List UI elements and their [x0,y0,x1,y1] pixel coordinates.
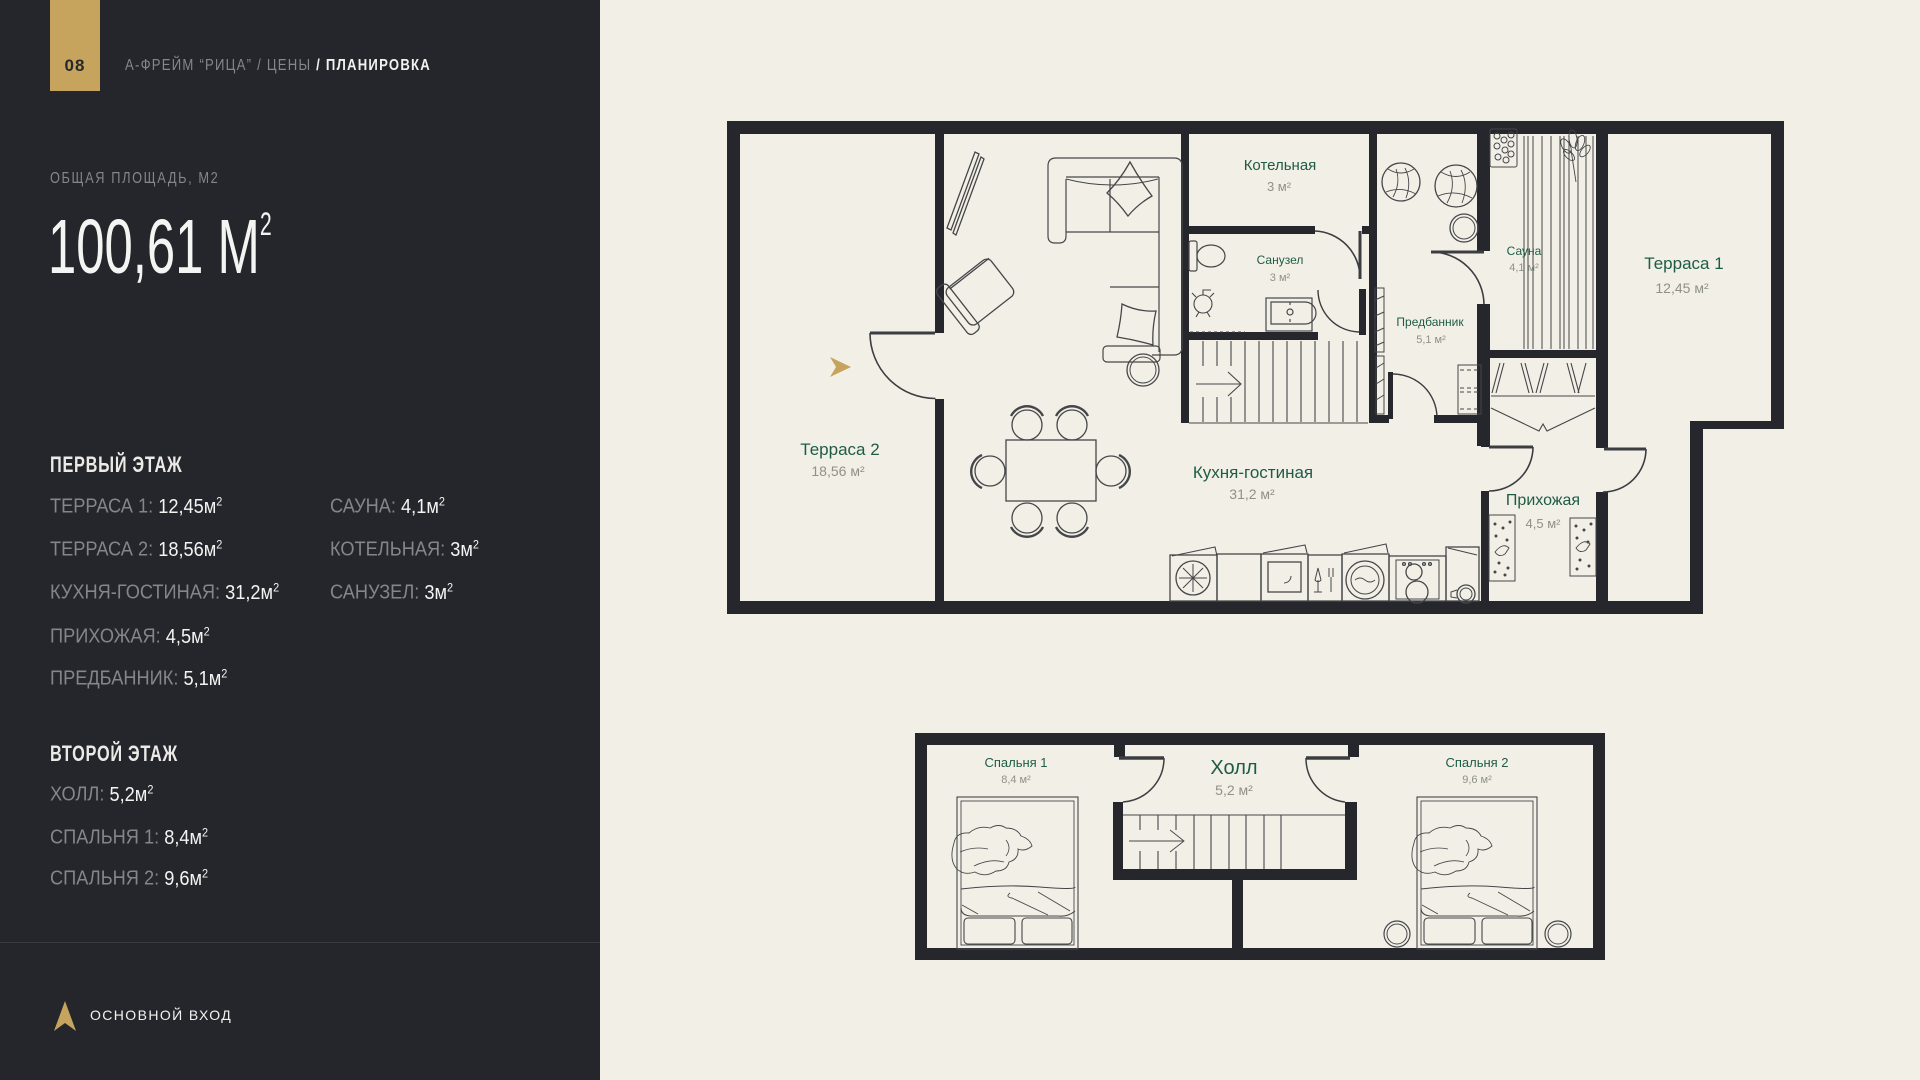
svg-text:4,5 м²: 4,5 м² [1526,516,1562,531]
svg-text:Прихожая: Прихожая [1506,492,1580,509]
svg-text:9,6 м²: 9,6 м² [1462,774,1492,786]
svg-text:Предбанник: Предбанник [1396,315,1464,329]
svg-text:Котельная: Котельная [1244,157,1317,174]
svg-text:12,45 м²: 12,45 м² [1655,280,1709,296]
svg-text:Санузел: Санузел [1257,253,1304,267]
svg-text:Спальня 1: Спальня 1 [984,755,1047,770]
svg-text:18,56 м²: 18,56 м² [811,463,865,479]
svg-text:Сауна: Сауна [1507,244,1542,258]
svg-text:Холл: Холл [1210,757,1257,779]
svg-text:Спальня 2: Спальня 2 [1445,755,1508,770]
svg-text:4,1 м²: 4,1 м² [1509,262,1539,274]
svg-text:31,2 м²: 31,2 м² [1229,486,1275,502]
svg-text:5,1 м²: 5,1 м² [1416,334,1446,346]
svg-text:Терраса 1: Терраса 1 [1644,254,1723,273]
svg-text:3 м²: 3 м² [1270,272,1291,284]
svg-text:Терраса 2: Терраса 2 [800,440,879,459]
svg-text:8,4 м²: 8,4 м² [1001,774,1031,786]
svg-text:Кухня-гостиная: Кухня-гостиная [1193,463,1313,482]
svg-text:5,2 м²: 5,2 м² [1215,782,1253,798]
svg-text:3 м²: 3 м² [1267,179,1292,194]
